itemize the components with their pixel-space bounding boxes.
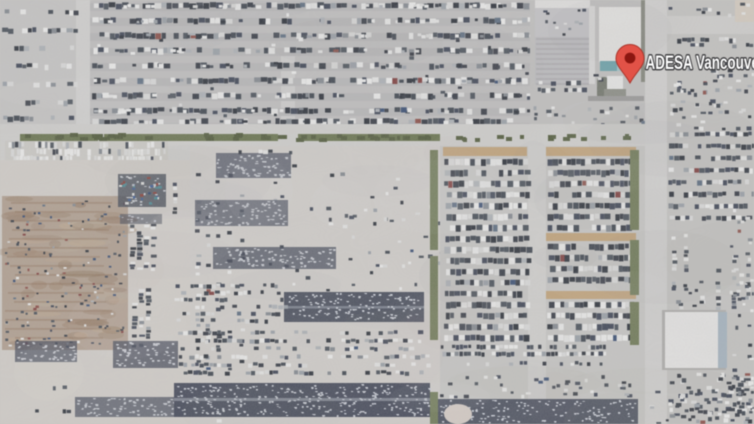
svg-text:ADESA Vancouver Aut: ADESA Vancouver Aut xyxy=(646,53,754,74)
